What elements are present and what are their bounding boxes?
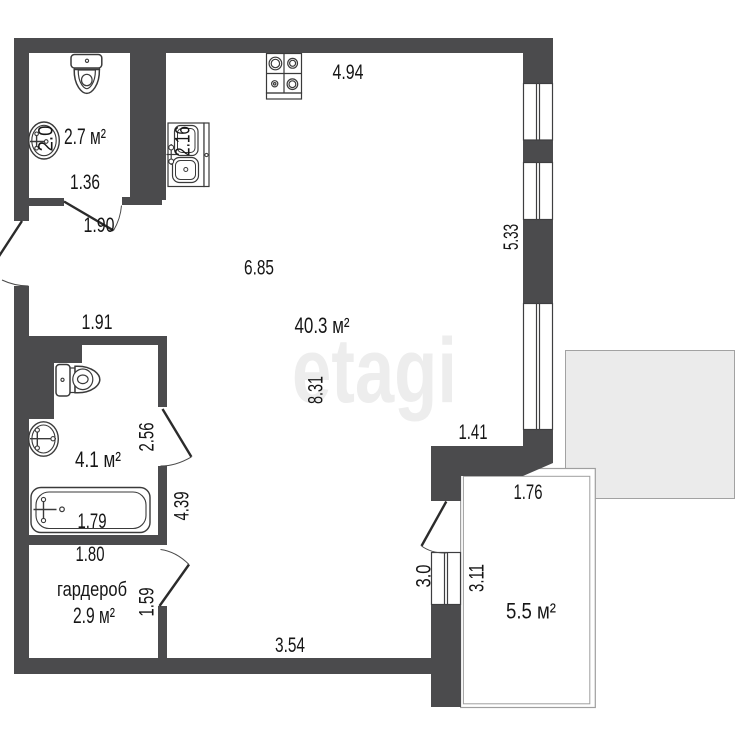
svg-text:1.59: 1.59 bbox=[136, 588, 159, 617]
svg-text:1.90: 1.90 bbox=[84, 214, 115, 237]
svg-text:2.16: 2.16 bbox=[172, 126, 195, 156]
svg-text:2.7 м²: 2.7 м² bbox=[64, 124, 106, 149]
svg-text:2.9 м²: 2.9 м² bbox=[73, 603, 115, 628]
svg-text:2.56: 2.56 bbox=[136, 423, 159, 452]
svg-text:5.5 м²: 5.5 м² bbox=[506, 599, 556, 624]
svg-text:1.79: 1.79 bbox=[78, 510, 107, 533]
svg-text:1.41: 1.41 bbox=[459, 421, 488, 444]
svg-text:3.0: 3.0 bbox=[413, 565, 436, 588]
svg-text:гардероб: гардероб bbox=[57, 579, 127, 601]
svg-text:4.39: 4.39 bbox=[171, 492, 194, 521]
svg-text:1.36: 1.36 bbox=[70, 171, 100, 194]
svg-text:6.85: 6.85 bbox=[244, 257, 274, 280]
svg-text:1.91: 1.91 bbox=[82, 311, 113, 334]
svg-text:2.0: 2.0 bbox=[35, 126, 58, 152]
svg-text:3.54: 3.54 bbox=[275, 634, 305, 657]
svg-text:1.76: 1.76 bbox=[514, 481, 543, 504]
svg-text:1.80: 1.80 bbox=[76, 543, 105, 566]
svg-text:8.31: 8.31 bbox=[305, 376, 328, 404]
svg-text:5.33: 5.33 bbox=[500, 224, 523, 250]
svg-text:4.1 м²: 4.1 м² bbox=[75, 447, 121, 472]
svg-text:40.3 м²: 40.3 м² bbox=[295, 313, 350, 338]
svg-text:3.11: 3.11 bbox=[466, 564, 489, 592]
svg-text:4.94: 4.94 bbox=[333, 61, 364, 84]
